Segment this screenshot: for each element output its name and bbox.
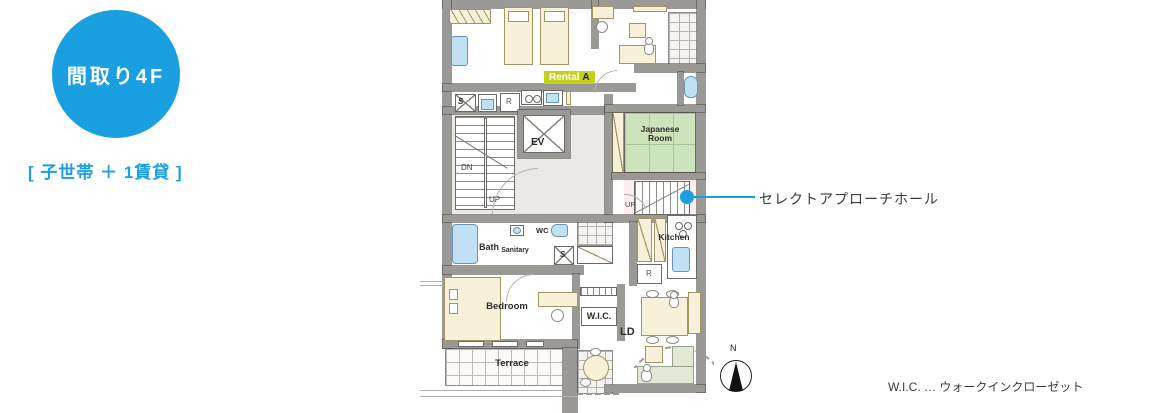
door-arc <box>624 194 646 216</box>
bathtub-icon <box>451 36 468 66</box>
stair-dn-label: DN <box>461 164 473 172</box>
callout-label: セレクトアプローチホール <box>759 189 939 209</box>
stair-divider <box>484 118 487 208</box>
washbasin-bowl <box>513 227 521 234</box>
floor-plan: Rental A S R DN UP EV Japanese Room UP B… <box>0 0 1150 413</box>
stove-icon <box>521 90 542 105</box>
desk-icon <box>538 292 578 307</box>
window-sill <box>633 6 667 12</box>
compass-n-label: N <box>730 344 737 353</box>
toilet-icon <box>551 224 568 237</box>
callout-line <box>691 196 755 198</box>
stairwell-void-hatch <box>577 246 613 264</box>
wall <box>605 385 705 392</box>
side-table-icon <box>645 346 663 363</box>
round-table-icon <box>583 355 609 381</box>
japanese-room-label: Japanese Room <box>624 125 696 143</box>
stool-icon <box>551 309 564 322</box>
wall <box>630 222 636 285</box>
wic-hanger-rail <box>580 287 617 296</box>
fridge-label: R <box>506 98 512 106</box>
terrace-label: Terrace <box>487 359 537 369</box>
wall <box>612 173 705 179</box>
storage-label: S <box>560 251 565 259</box>
wall <box>573 274 579 348</box>
sanitary-label: Sanitary <box>494 247 536 254</box>
bedroom-label: Bedroom <box>472 302 542 312</box>
wall <box>605 105 705 112</box>
floorplan-page: { "badge": { "label": "間取り4F" }, "captio… <box>0 0 1150 413</box>
pillow-icon <box>544 11 565 22</box>
compass-needle-icon <box>729 362 743 391</box>
door-arc <box>594 70 617 93</box>
rental-a-tag: Rental A <box>544 71 595 84</box>
wall <box>563 348 577 413</box>
window <box>526 341 544 347</box>
rental-a-label: Rental <box>549 72 580 83</box>
stool-icon <box>596 21 608 33</box>
fridge-label: R <box>646 270 652 278</box>
person-icon <box>644 42 654 55</box>
elevator-label: EV <box>531 138 544 149</box>
kitchen-label: Kitchen <box>645 233 703 242</box>
wall <box>605 95 612 222</box>
door-arc <box>492 168 538 214</box>
elevator: EV <box>518 110 570 158</box>
wic-label: W.I.C. <box>587 311 612 321</box>
balcony-edge-line <box>420 281 443 282</box>
japanese-room-closet <box>612 112 624 173</box>
japanese-room-label-line2: Room <box>624 134 696 143</box>
window <box>458 341 484 347</box>
balcony-edge-line <box>420 396 577 397</box>
chair-icon <box>646 290 659 298</box>
pillow-icon <box>449 303 458 314</box>
wic-label-box: W.I.C. <box>581 307 617 326</box>
rental-a-unit: A <box>582 72 589 83</box>
storage-label: S <box>458 98 463 106</box>
wall <box>678 72 683 105</box>
balcony-edge-line <box>420 390 563 391</box>
wic-legend: W.I.C. … ウォークインクローゼット <box>888 378 1083 395</box>
kitchen-sink <box>672 247 690 272</box>
wc-label: WC <box>536 227 549 235</box>
wall <box>443 266 583 274</box>
ld-label: LD <box>620 327 635 339</box>
washer-drum <box>481 99 494 110</box>
dining-table-icon <box>641 297 688 336</box>
chair-icon <box>580 378 591 387</box>
person-icon <box>641 369 652 382</box>
balcony-grid <box>668 12 698 66</box>
porch-step-dashed <box>577 393 619 395</box>
window <box>492 341 518 347</box>
balcony-edge-line <box>420 285 443 286</box>
vanity-icon <box>592 6 614 19</box>
chair-icon <box>590 348 601 356</box>
person-icon <box>669 296 679 308</box>
sink-basin <box>546 93 559 103</box>
window-sill <box>566 91 571 105</box>
closet-hatch <box>449 9 491 24</box>
side-table-icon <box>629 23 646 38</box>
compass: N <box>716 344 756 396</box>
door-arc <box>506 274 533 301</box>
tv-board-icon <box>688 292 701 334</box>
wall <box>635 64 705 72</box>
toilet-icon <box>684 76 698 98</box>
pillow-icon <box>449 289 458 300</box>
pillow-icon <box>508 11 529 22</box>
